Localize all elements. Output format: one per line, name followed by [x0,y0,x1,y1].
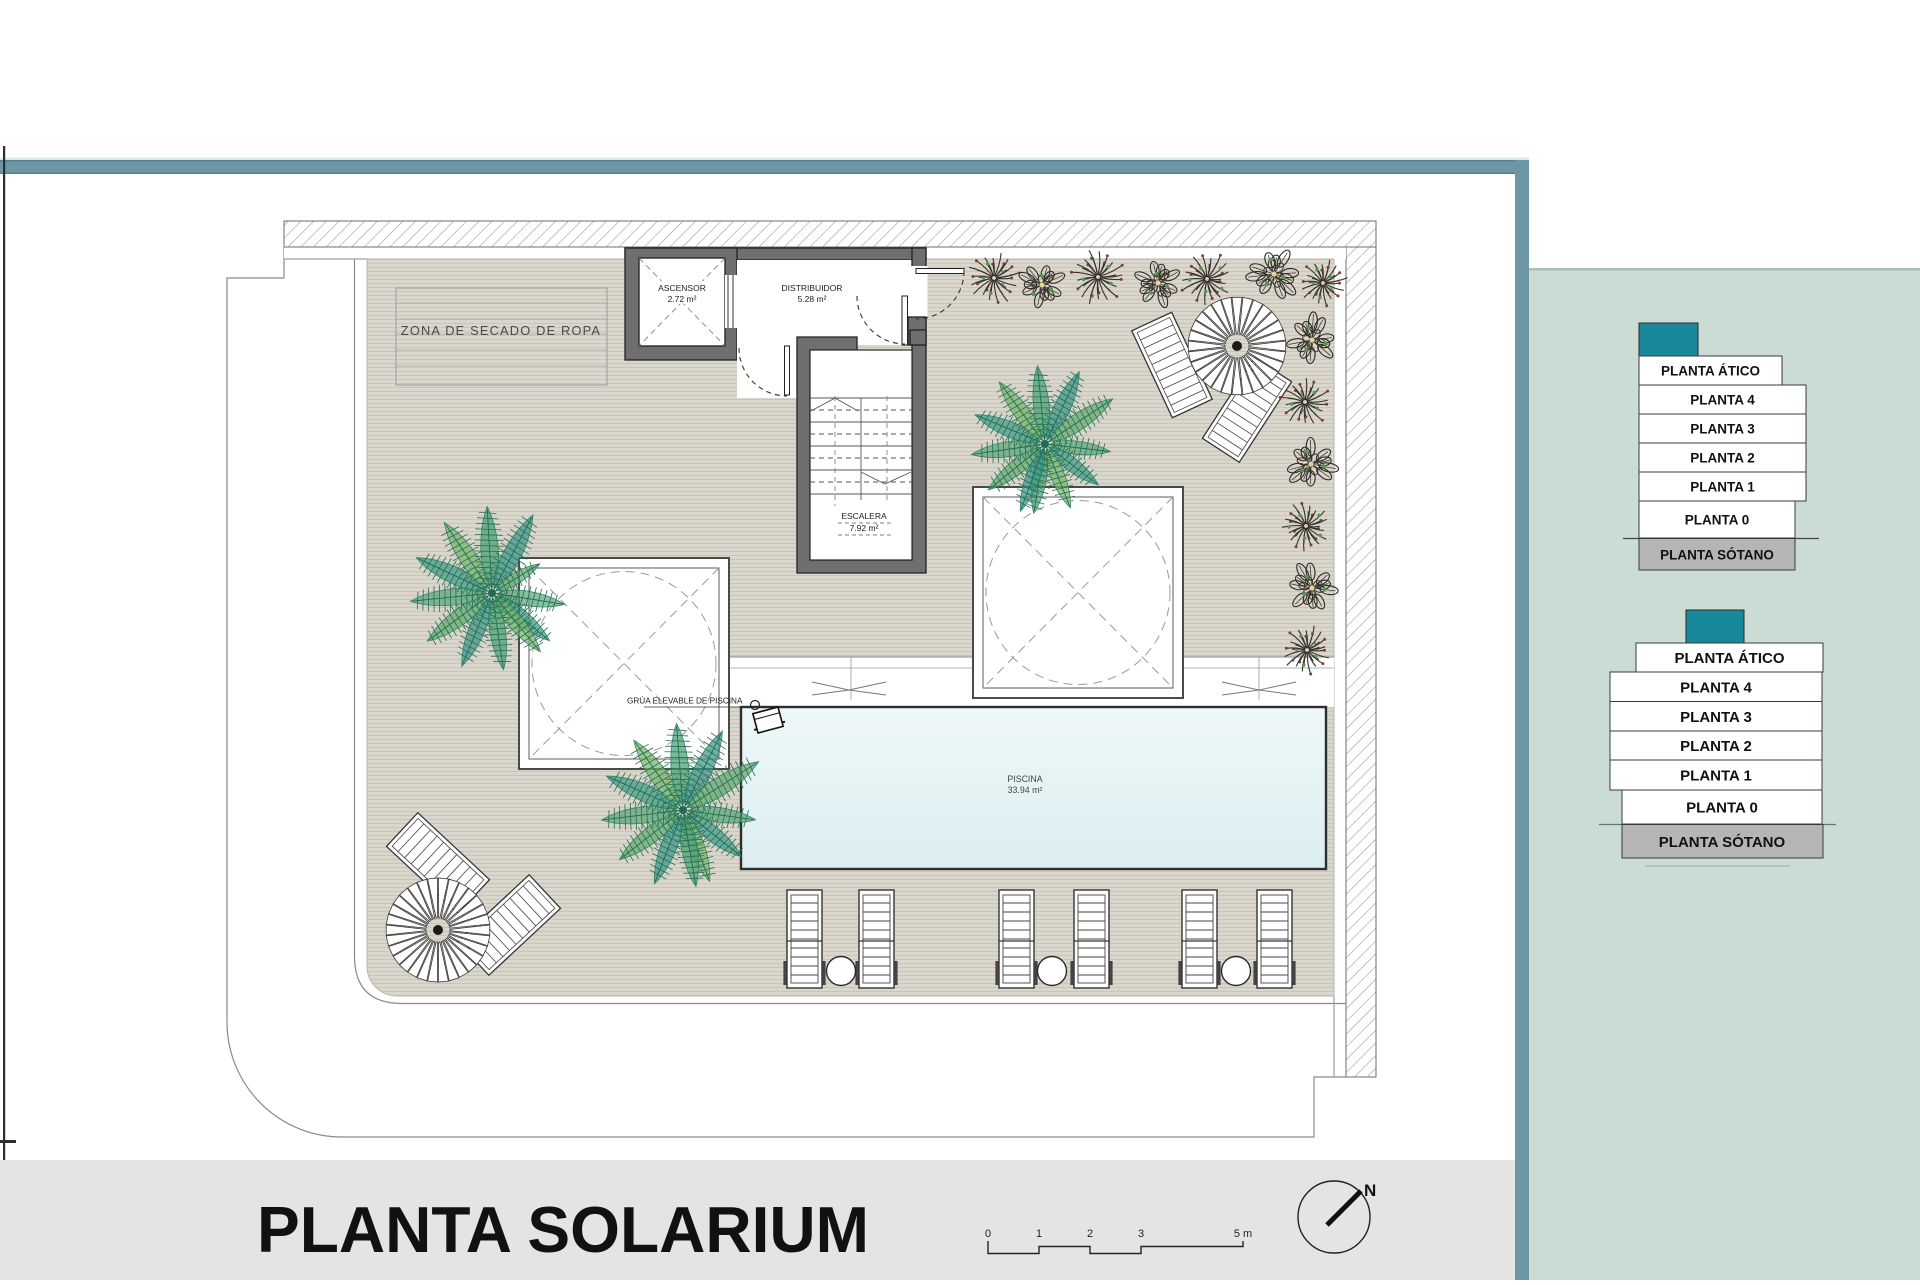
svg-text:PLANTA 1: PLANTA 1 [1690,480,1755,495]
svg-text:PLANTA 4: PLANTA 4 [1680,679,1752,696]
svg-text:33.94 m²: 33.94 m² [1008,785,1043,795]
svg-text:5.28 m²: 5.28 m² [798,294,827,304]
svg-text:5 m: 5 m [1234,1228,1252,1240]
svg-text:N: N [1364,1181,1376,1200]
svg-text:PLANTA SÓTANO: PLANTA SÓTANO [1659,833,1786,851]
svg-text:PLANTA 1: PLANTA 1 [1680,768,1752,785]
svg-text:ZONA DE SECADO DE ROPA: ZONA DE SECADO DE ROPA [401,323,601,338]
svg-text:7.92 m²: 7.92 m² [850,523,879,533]
svg-text:PLANTA SOLARIUM: PLANTA SOLARIUM [257,1194,869,1266]
svg-text:2: 2 [1087,1228,1093,1240]
svg-text:PLANTA 3: PLANTA 3 [1690,422,1755,437]
svg-text:0: 0 [985,1228,991,1240]
svg-text:GRÚA ELEVABLE DE PISCINA: GRÚA ELEVABLE DE PISCINA [627,696,743,706]
svg-text:ASCENSOR: ASCENSOR [658,283,706,293]
svg-text:3: 3 [1138,1228,1144,1240]
svg-text:PLANTA 0: PLANTA 0 [1685,513,1750,528]
svg-text:PLANTA ÁTICO: PLANTA ÁTICO [1661,364,1760,379]
svg-text:PISCINA: PISCINA [1007,774,1042,784]
svg-text:PLANTA 3: PLANTA 3 [1680,709,1752,726]
svg-text:PLANTA ÁTICO: PLANTA ÁTICO [1675,650,1785,667]
svg-text:1: 1 [1036,1228,1042,1240]
svg-text:PLANTA 2: PLANTA 2 [1680,738,1752,755]
svg-text:2.72 m²: 2.72 m² [668,294,697,304]
svg-text:PLANTA 2: PLANTA 2 [1690,451,1755,466]
svg-text:DISTRIBUIDOR: DISTRIBUIDOR [782,283,843,293]
svg-text:PLANTA 0: PLANTA 0 [1686,800,1758,817]
svg-text:PLANTA 4: PLANTA 4 [1690,393,1755,408]
svg-text:PLANTA SÓTANO: PLANTA SÓTANO [1660,548,1774,563]
svg-text:ESCALERA: ESCALERA [841,511,887,521]
